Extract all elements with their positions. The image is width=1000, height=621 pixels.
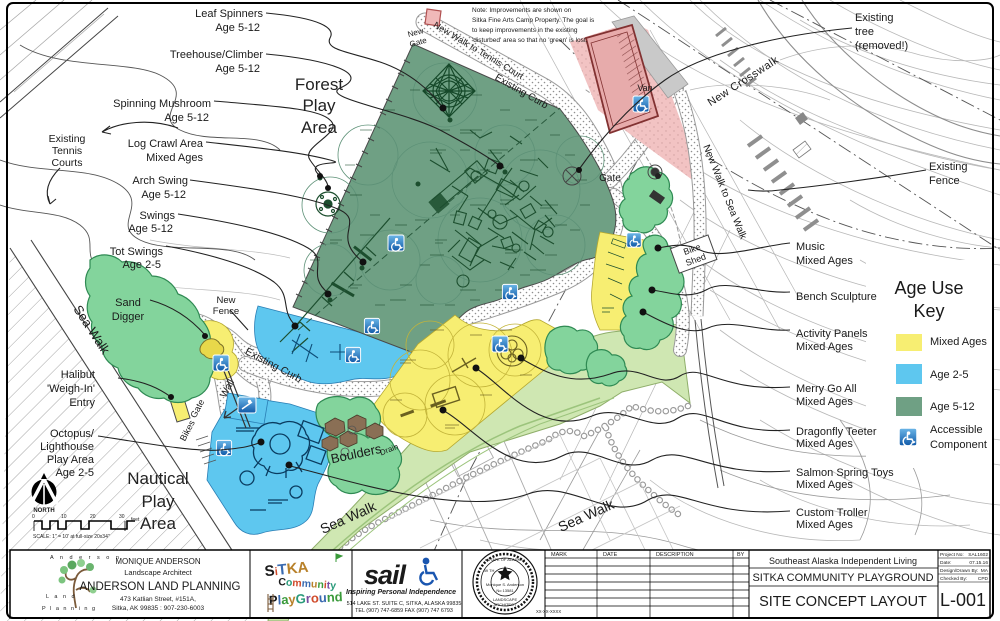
svg-text:Music: Music bbox=[796, 241, 825, 253]
svg-text:Lighthouse: Lighthouse bbox=[40, 441, 94, 453]
svg-text:Age 2-5: Age 2-5 bbox=[55, 467, 94, 479]
svg-text:BY: BY bbox=[737, 552, 745, 558]
svg-text:Octopus/: Octopus/ bbox=[50, 428, 95, 440]
svg-text:Activity Panels: Activity Panels bbox=[796, 328, 868, 340]
svg-text:Halibut: Halibut bbox=[61, 369, 95, 381]
svg-text:514 LAKE ST. SUITE C, SITKA, A: 514 LAKE ST. SUITE C, SITKA, ALASKA 9983… bbox=[347, 601, 462, 607]
svg-text:New: New bbox=[216, 295, 235, 306]
svg-text:473 Katlian Street, #151A,: 473 Katlian Street, #151A, bbox=[120, 596, 196, 603]
svg-text:Tot Swings: Tot Swings bbox=[110, 246, 164, 258]
svg-text:No 13581: No 13581 bbox=[496, 588, 514, 593]
svg-text:Digger: Digger bbox=[112, 311, 145, 323]
svg-text:A n d e r s o n: A n d e r s o n bbox=[50, 555, 121, 561]
svg-text:Age 5-12: Age 5-12 bbox=[930, 401, 975, 413]
svg-text:Treehouse/Climber: Treehouse/Climber bbox=[170, 49, 263, 61]
svg-text:Mixed Ages: Mixed Ages bbox=[796, 519, 853, 531]
svg-text:Swings: Swings bbox=[140, 210, 176, 222]
svg-text:30: 30 bbox=[119, 514, 125, 520]
svg-text:'disturbed' area so that no 'g: 'disturbed' area so that no 'green' is l… bbox=[472, 37, 588, 44]
svg-text:Existing: Existing bbox=[855, 12, 894, 24]
svg-text:Design/Drawn By:: Design/Drawn By: bbox=[940, 568, 978, 574]
svg-text:to keep improvements in the ex: to keep improvements in the existing bbox=[472, 27, 578, 34]
svg-text:Gate: Gate bbox=[599, 173, 621, 184]
svg-text:Nautical: Nautical bbox=[127, 469, 188, 488]
svg-text:Area: Area bbox=[140, 514, 176, 533]
svg-text:Leaf Spinners: Leaf Spinners bbox=[195, 8, 263, 20]
svg-text:tree: tree bbox=[855, 26, 874, 38]
svg-text:Sitka, AK 99835 : 907-230-6003: Sitka, AK 99835 : 907-230-6003 bbox=[112, 605, 205, 612]
svg-text:MA: MA bbox=[981, 568, 989, 574]
svg-text:(removed!): (removed!) bbox=[855, 40, 908, 52]
svg-text:20: 20 bbox=[90, 514, 96, 520]
svg-text:Tennis: Tennis bbox=[52, 145, 82, 157]
svg-text:Southeast Alaska Independent L: Southeast Alaska Independent Living bbox=[769, 556, 917, 566]
svg-text:'Weigh-In': 'Weigh-In' bbox=[47, 383, 95, 395]
svg-text:Key: Key bbox=[913, 301, 944, 321]
svg-text:Dragonfly Teeter: Dragonfly Teeter bbox=[796, 426, 877, 438]
svg-text:Salmon Spring Toys: Salmon Spring Toys bbox=[796, 467, 894, 479]
svg-text:Age 5-12: Age 5-12 bbox=[215, 63, 260, 75]
svg-text:Fence: Fence bbox=[929, 175, 960, 187]
svg-text:Fence: Fence bbox=[213, 306, 239, 317]
svg-text:Age 5-12: Age 5-12 bbox=[164, 112, 209, 124]
svg-text:SITKA COMMUNITY PLAYGROUND: SITKA COMMUNITY PLAYGROUND bbox=[752, 572, 933, 584]
svg-text:L-001: L-001 bbox=[940, 590, 986, 610]
svg-text:Note: Improvements are shown: Note: Improvements are shown on bbox=[472, 7, 572, 14]
svg-text:L a n d: L a n d bbox=[46, 594, 77, 600]
svg-text:ANDERSON LAND PLANNING: ANDERSON LAND PLANNING bbox=[79, 581, 240, 593]
svg-text:Area: Area bbox=[301, 118, 337, 137]
svg-text:Merry Go All: Merry Go All bbox=[796, 383, 857, 395]
svg-text:P l a n n i n g: P l a n n i n g bbox=[42, 606, 97, 612]
svg-text:Age 2-5: Age 2-5 bbox=[930, 369, 969, 381]
svg-text:Play Area: Play Area bbox=[47, 454, 95, 466]
svg-text:0: 0 bbox=[32, 514, 35, 520]
svg-text:Mixed Ages: Mixed Ages bbox=[146, 152, 203, 164]
svg-text:Monique S. Anderson: Monique S. Anderson bbox=[486, 582, 524, 587]
svg-text:Project No:: Project No: bbox=[940, 552, 964, 558]
svg-text:Age 5-12: Age 5-12 bbox=[141, 189, 186, 201]
svg-text:Spinning Mushroom: Spinning Mushroom bbox=[113, 98, 211, 110]
svg-text:Sand: Sand bbox=[115, 297, 141, 309]
svg-text:Courts: Courts bbox=[52, 157, 83, 169]
svg-text:Age 5-12: Age 5-12 bbox=[128, 223, 173, 235]
svg-text:Mixed Ages: Mixed Ages bbox=[796, 396, 853, 408]
svg-text:Age Use: Age Use bbox=[894, 278, 963, 298]
svg-text:Custom Troller: Custom Troller bbox=[796, 507, 868, 519]
svg-text:Inspiring Personal Independenc: Inspiring Personal Independence bbox=[346, 589, 456, 596]
svg-text:feet: feet bbox=[131, 517, 140, 523]
svg-text:Mixed Ages: Mixed Ages bbox=[796, 255, 853, 267]
svg-text:Age 2-5: Age 2-5 bbox=[122, 259, 161, 271]
svg-text:Forest: Forest bbox=[295, 75, 343, 94]
svg-text:Mixed Ages: Mixed Ages bbox=[796, 479, 853, 491]
svg-text:Arch Swing: Arch Swing bbox=[132, 175, 188, 187]
svg-text:SITE CONCEPT LAYOUT: SITE CONCEPT LAYOUT bbox=[759, 594, 927, 610]
svg-text:sail: sail bbox=[364, 560, 407, 590]
svg-text:DATE: DATE bbox=[603, 552, 618, 558]
svg-text:Accessible: Accessible bbox=[930, 424, 983, 436]
svg-text:Play: Play bbox=[302, 96, 336, 115]
svg-text:Component: Component bbox=[930, 439, 987, 451]
svg-text:Sitka Fine Arts Camp Property.: Sitka Fine Arts Camp Property. The goal … bbox=[472, 17, 595, 24]
svg-text:Play: Play bbox=[141, 492, 175, 511]
svg-text:• STATE OF ALASKA •: • STATE OF ALASKA • bbox=[485, 557, 526, 562]
svg-text:Entry: Entry bbox=[69, 397, 95, 409]
svg-text:Log Crawl Area: Log Crawl Area bbox=[128, 138, 204, 150]
svg-text:Date:: Date: bbox=[940, 560, 951, 566]
svg-text:DESCRIPTION: DESCRIPTION bbox=[656, 552, 694, 558]
svg-text:XX-XX-XXXX: XX-XX-XXXX bbox=[536, 609, 561, 614]
svg-text:07.15.16: 07.15.16 bbox=[969, 560, 988, 566]
svg-text:Mixed Ages: Mixed Ages bbox=[930, 336, 987, 348]
svg-text:Mixed Ages: Mixed Ages bbox=[796, 438, 853, 450]
svg-text:NORTH: NORTH bbox=[33, 508, 54, 514]
svg-text:CPD: CPD bbox=[978, 576, 989, 582]
svg-text:MONIQUE ANDERSON: MONIQUE ANDERSON bbox=[115, 557, 201, 566]
svg-text:10: 10 bbox=[61, 514, 67, 520]
svg-text:Checked By:: Checked By: bbox=[940, 576, 967, 582]
svg-text:SCALE: 1" = 10' at full-size 2: SCALE: 1" = 10' at full-size 20x34" bbox=[33, 534, 110, 540]
svg-text:49 TH: 49 TH bbox=[484, 568, 495, 573]
svg-text:Bench Sculpture: Bench Sculpture bbox=[796, 291, 877, 303]
svg-text:SAL1602: SAL1602 bbox=[968, 552, 988, 558]
svg-text:ARCHITECT: ARCHITECT bbox=[494, 602, 517, 607]
svg-text:Age 5-12: Age 5-12 bbox=[215, 22, 260, 34]
svg-text:TEL (907) 747-6859 FAX (907: TEL (907) 747-6859 FAX (907) 747 6793 bbox=[355, 608, 453, 614]
svg-text:MARK: MARK bbox=[551, 552, 567, 558]
svg-text:Mixed Ages: Mixed Ages bbox=[796, 341, 853, 353]
svg-text:Existing: Existing bbox=[929, 161, 968, 173]
svg-text:Landscape Architect: Landscape Architect bbox=[124, 568, 192, 577]
svg-text:Existing: Existing bbox=[49, 133, 86, 145]
